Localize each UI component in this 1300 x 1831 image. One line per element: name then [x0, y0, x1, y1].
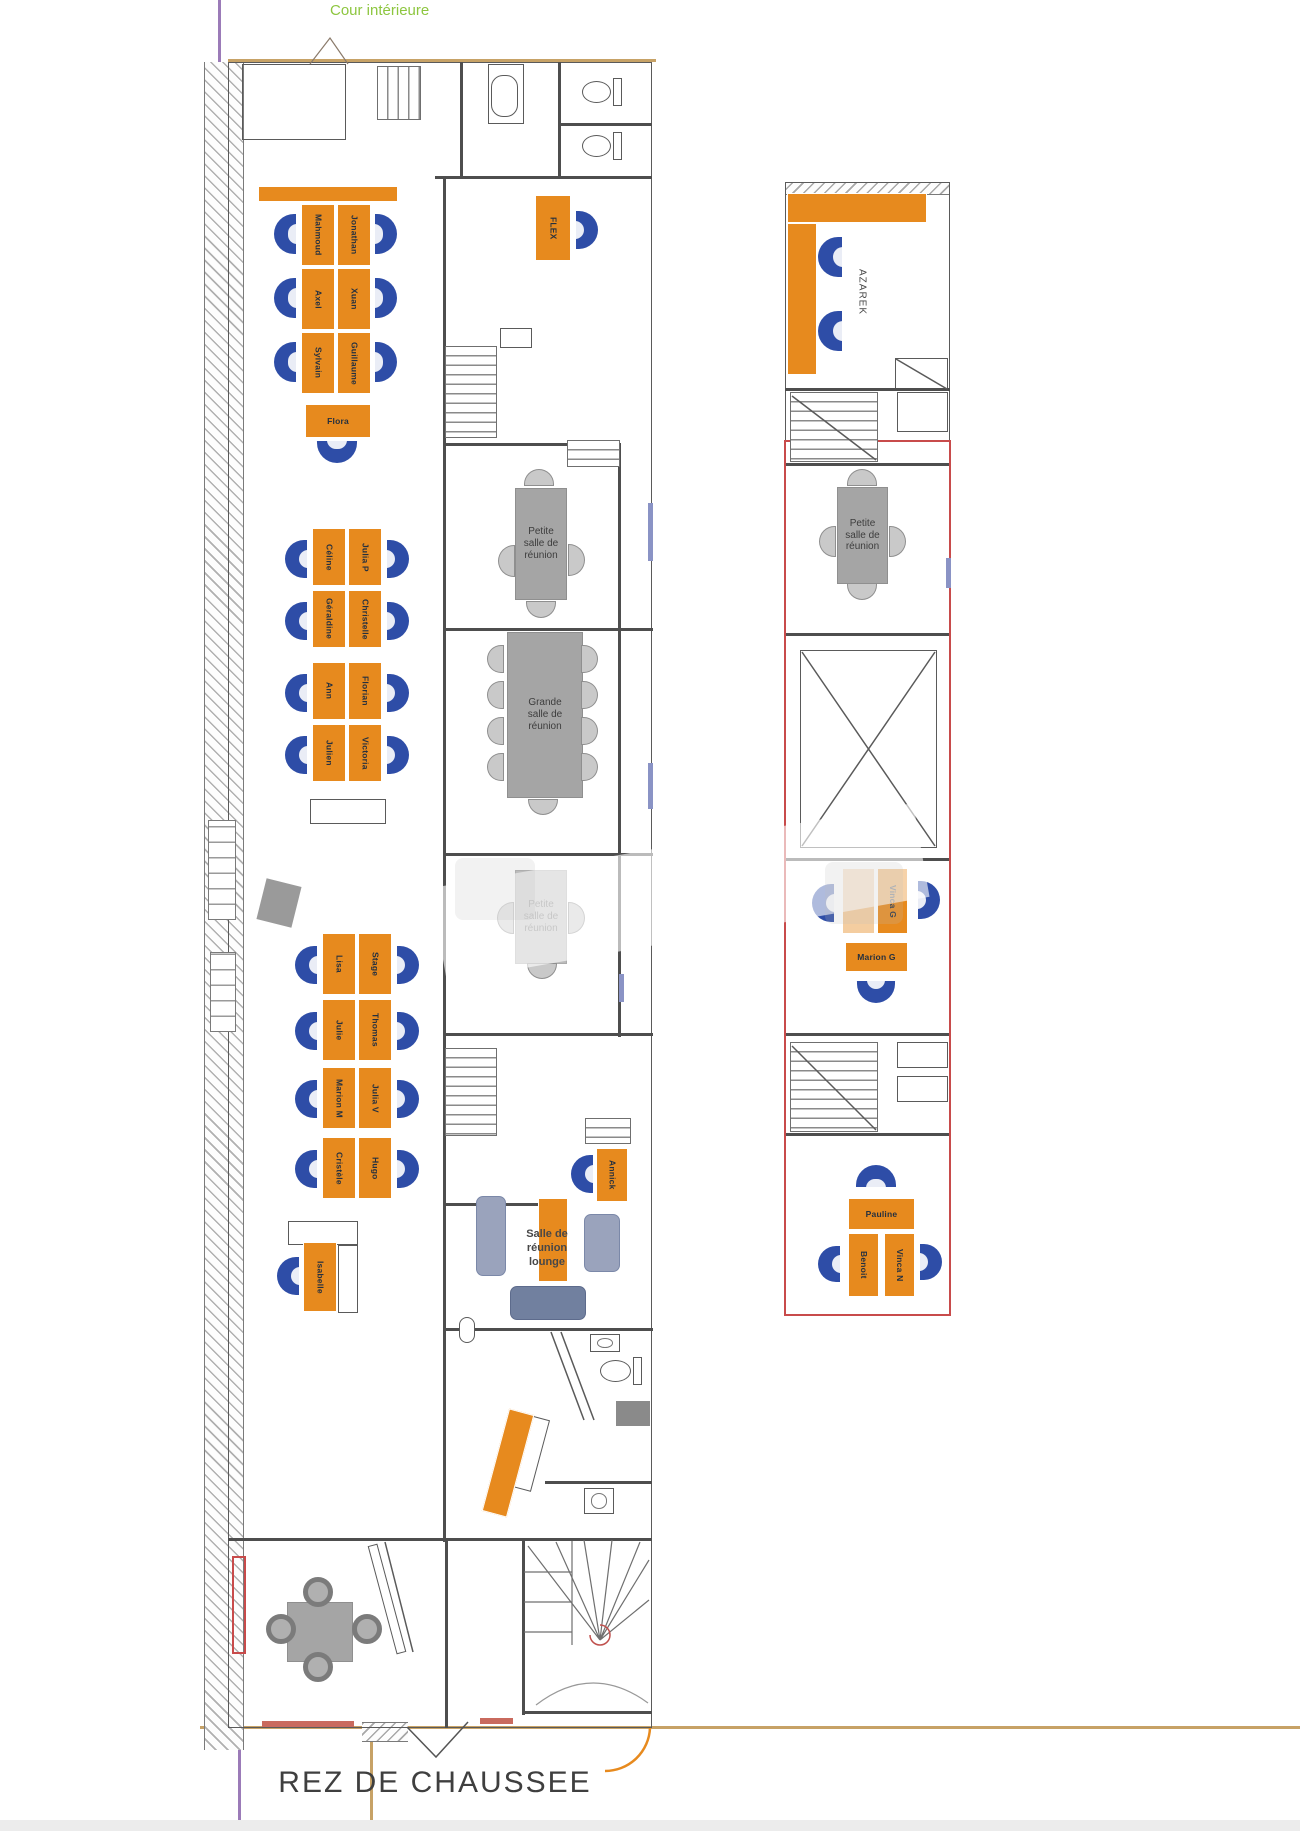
bottom-strip: [0, 1820, 1300, 1831]
desk-florian: Florian: [348, 662, 382, 720]
desk-julia-v: Julia V: [358, 1067, 392, 1129]
desk-ann: Ann: [312, 662, 346, 720]
desk-name-label: Florian: [361, 676, 370, 706]
chair-icon: [274, 342, 296, 382]
chair-icon: [375, 342, 397, 382]
desk-flora: Flora: [305, 404, 371, 438]
desk-xuan: Xuan: [337, 268, 371, 330]
chair-icon: [397, 1012, 419, 1050]
chair-icon: [375, 214, 397, 254]
chair-icon: [375, 278, 397, 318]
desk-name-label: Axel: [314, 290, 323, 309]
desk-name-label: Julien: [325, 740, 334, 766]
desk-lisa: Lisa: [322, 933, 356, 995]
desk-name-label: FLEX: [549, 217, 558, 240]
watermark: [455, 858, 535, 920]
desk: [787, 193, 927, 223]
chair-icon: [818, 311, 842, 351]
desk-name-label: Julia P: [361, 543, 370, 572]
plan-layer-over: MahmoudJonathanAxelXuanSylvainGuillaumeF…: [0, 0, 1300, 1831]
desk-name-label: Christelle: [361, 599, 370, 640]
chair-icon: [387, 602, 409, 640]
desk-name-label: Ann: [325, 682, 334, 699]
courtyard-label: Cour intérieure: [330, 2, 460, 19]
desk-flex: FLEX: [535, 195, 571, 261]
chair-icon: [397, 1150, 419, 1188]
desk-name-label: Thomas: [371, 1013, 380, 1047]
desk-mahmoud: Mahmoud: [301, 204, 335, 266]
chair-icon: [818, 237, 842, 277]
desk-name-label: Cristèle: [335, 1152, 344, 1185]
desk-name-label: Marion M: [335, 1079, 344, 1118]
chair-icon: [857, 981, 895, 1003]
floor-title-label: REZ DE CHAUSSEE: [270, 1766, 600, 1800]
chair-icon: [818, 1246, 840, 1282]
desk-thomas: Thomas: [358, 999, 392, 1061]
desk-marion-m: Marion M: [322, 1067, 356, 1129]
chair-icon: [295, 1012, 317, 1050]
chair-icon: [285, 736, 307, 774]
chair-icon: [277, 1257, 299, 1295]
desk-name-label: Lisa: [335, 955, 344, 973]
chair-icon: [856, 1165, 896, 1187]
desk-vinca-n: Vinca N: [884, 1233, 915, 1297]
chair-icon: [274, 278, 296, 318]
desk-hugo: Hugo: [358, 1137, 392, 1199]
room-label-lounge: Salle de réunion lounge: [497, 1212, 597, 1286]
desk-benoit: Benoit: [848, 1233, 879, 1297]
desk-axel: Axel: [301, 268, 335, 330]
desk-name-label: Flora: [327, 417, 349, 426]
chair-icon: [285, 602, 307, 640]
desk-cristele: Cristèle: [322, 1137, 356, 1199]
chair-icon: [295, 1150, 317, 1188]
chair-icon: [920, 1244, 942, 1280]
chair-icon: [397, 1080, 419, 1118]
desk-name-label: Marion G: [857, 953, 895, 962]
desk-name-label: Hugo: [371, 1157, 380, 1180]
desk-name-label: Victoria: [361, 737, 370, 770]
room-label-azarek: AZAREK: [850, 240, 872, 344]
desk-name-label: Guillaume: [350, 342, 359, 385]
chair-icon: [397, 946, 419, 984]
chair-icon: [274, 214, 296, 254]
desk: [787, 223, 817, 375]
desk-christelle: Christelle: [348, 590, 382, 648]
desk-name-label: Jonathan: [350, 215, 359, 254]
chair-icon: [295, 946, 317, 984]
desk-name-label: Benoit: [859, 1251, 868, 1279]
chair-icon: [285, 674, 307, 712]
desk-victoria: Victoria: [348, 724, 382, 782]
desk-name-label: Céline: [325, 544, 334, 571]
desk-annick: Annick: [596, 1148, 628, 1202]
desk-isabelle: Isabelle: [303, 1242, 337, 1312]
desk-name-label: Vinca N: [895, 1249, 904, 1281]
chair-icon: [571, 1155, 593, 1193]
desk-stage: Stage: [358, 933, 392, 995]
chair-icon: [317, 441, 357, 463]
chair-icon: [576, 211, 598, 249]
desk-name-label: Isabelle: [316, 1261, 325, 1294]
desk-julien: Julien: [312, 724, 346, 782]
desk-name-label: Mahmoud: [314, 214, 323, 256]
desk-name-label: Sylvain: [314, 347, 323, 378]
chair-icon: [387, 540, 409, 578]
chair-icon: [285, 540, 307, 578]
desk-julia-p: Julia P: [348, 528, 382, 586]
desk-guillaume: Guillaume: [337, 332, 371, 394]
desk-name-label: Stage: [371, 952, 380, 976]
desk-name-label: Annick: [608, 1160, 617, 1190]
desk-geraldine: Géraldine: [312, 590, 346, 648]
chair-icon: [295, 1080, 317, 1118]
desk-sylvain: Sylvain: [301, 332, 335, 394]
desk-name-label: Géraldine: [325, 598, 334, 639]
desk: [258, 186, 398, 202]
floor-plan: Petite salle de réunionGrande salle de r…: [0, 0, 1300, 1831]
desk-celine: Céline: [312, 528, 346, 586]
desk-name-label: Pauline: [866, 1210, 898, 1219]
desk-marion-g: Marion G: [845, 942, 908, 972]
desk-name-label: Julie: [335, 1020, 344, 1040]
desk-pauline: Pauline: [848, 1198, 915, 1230]
desk: [482, 1408, 535, 1517]
desk-name-label: Julia V: [371, 1084, 380, 1113]
watermark: [825, 862, 903, 924]
chair-icon: [387, 674, 409, 712]
desk-jonathan: Jonathan: [337, 204, 371, 266]
desk-name-label: Xuan: [350, 288, 359, 310]
chair-icon: [387, 736, 409, 774]
desk-julie: Julie: [322, 999, 356, 1061]
